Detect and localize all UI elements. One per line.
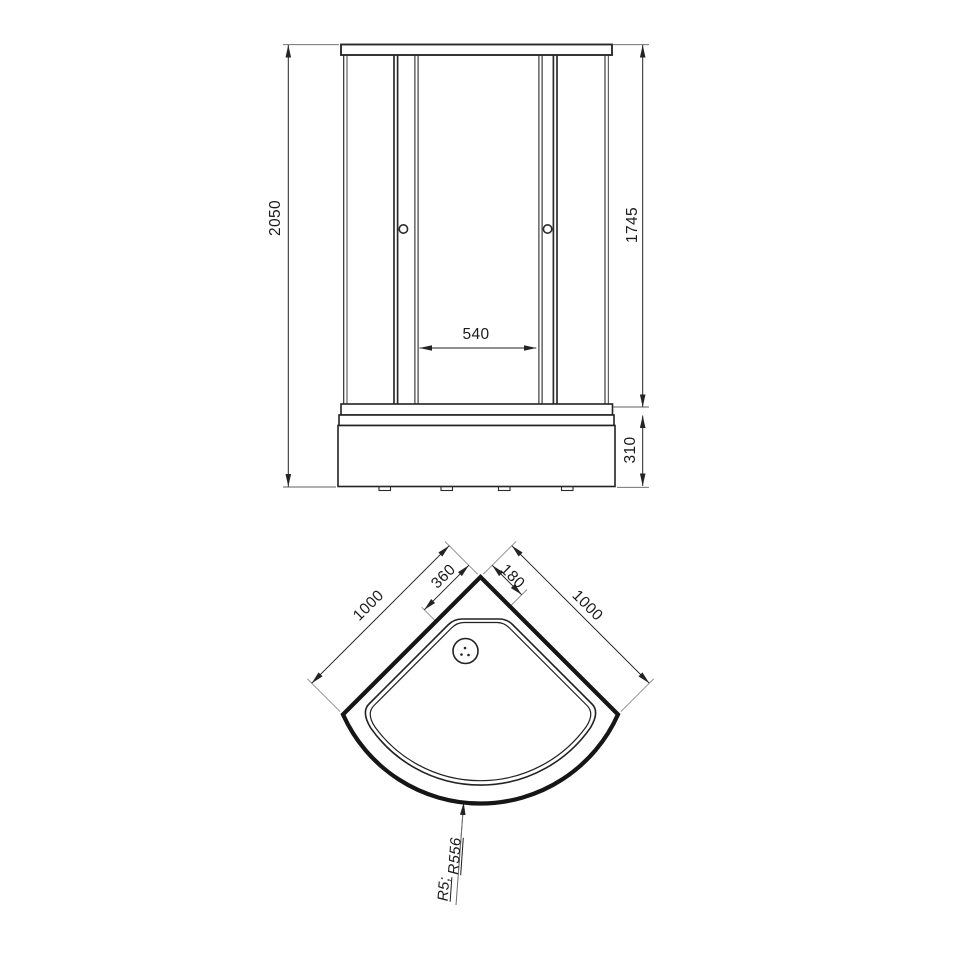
canopy-bar (341, 45, 612, 56)
dim-label-door-opening: 540 (462, 326, 489, 344)
dim-label-total-height: 2050 (267, 200, 285, 236)
technical-drawing-page: 2050 1745 540 310 1000 1000 360 180 R5; … (0, 0, 970, 970)
glass-panels (344, 55, 609, 404)
top-view (307, 541, 653, 905)
front-view (283, 45, 649, 491)
technical-drawing-canvas (0, 0, 970, 970)
dim-label-tray-height: 310 (622, 436, 640, 463)
dim-label-radius-front: R556 (445, 837, 465, 876)
dim-label-glass-height: 1745 (624, 207, 642, 243)
door-knob-left (399, 225, 407, 233)
dim-label-radius-small: R5; (435, 876, 454, 902)
tray-base (338, 404, 615, 491)
door-knob-right (543, 225, 551, 233)
